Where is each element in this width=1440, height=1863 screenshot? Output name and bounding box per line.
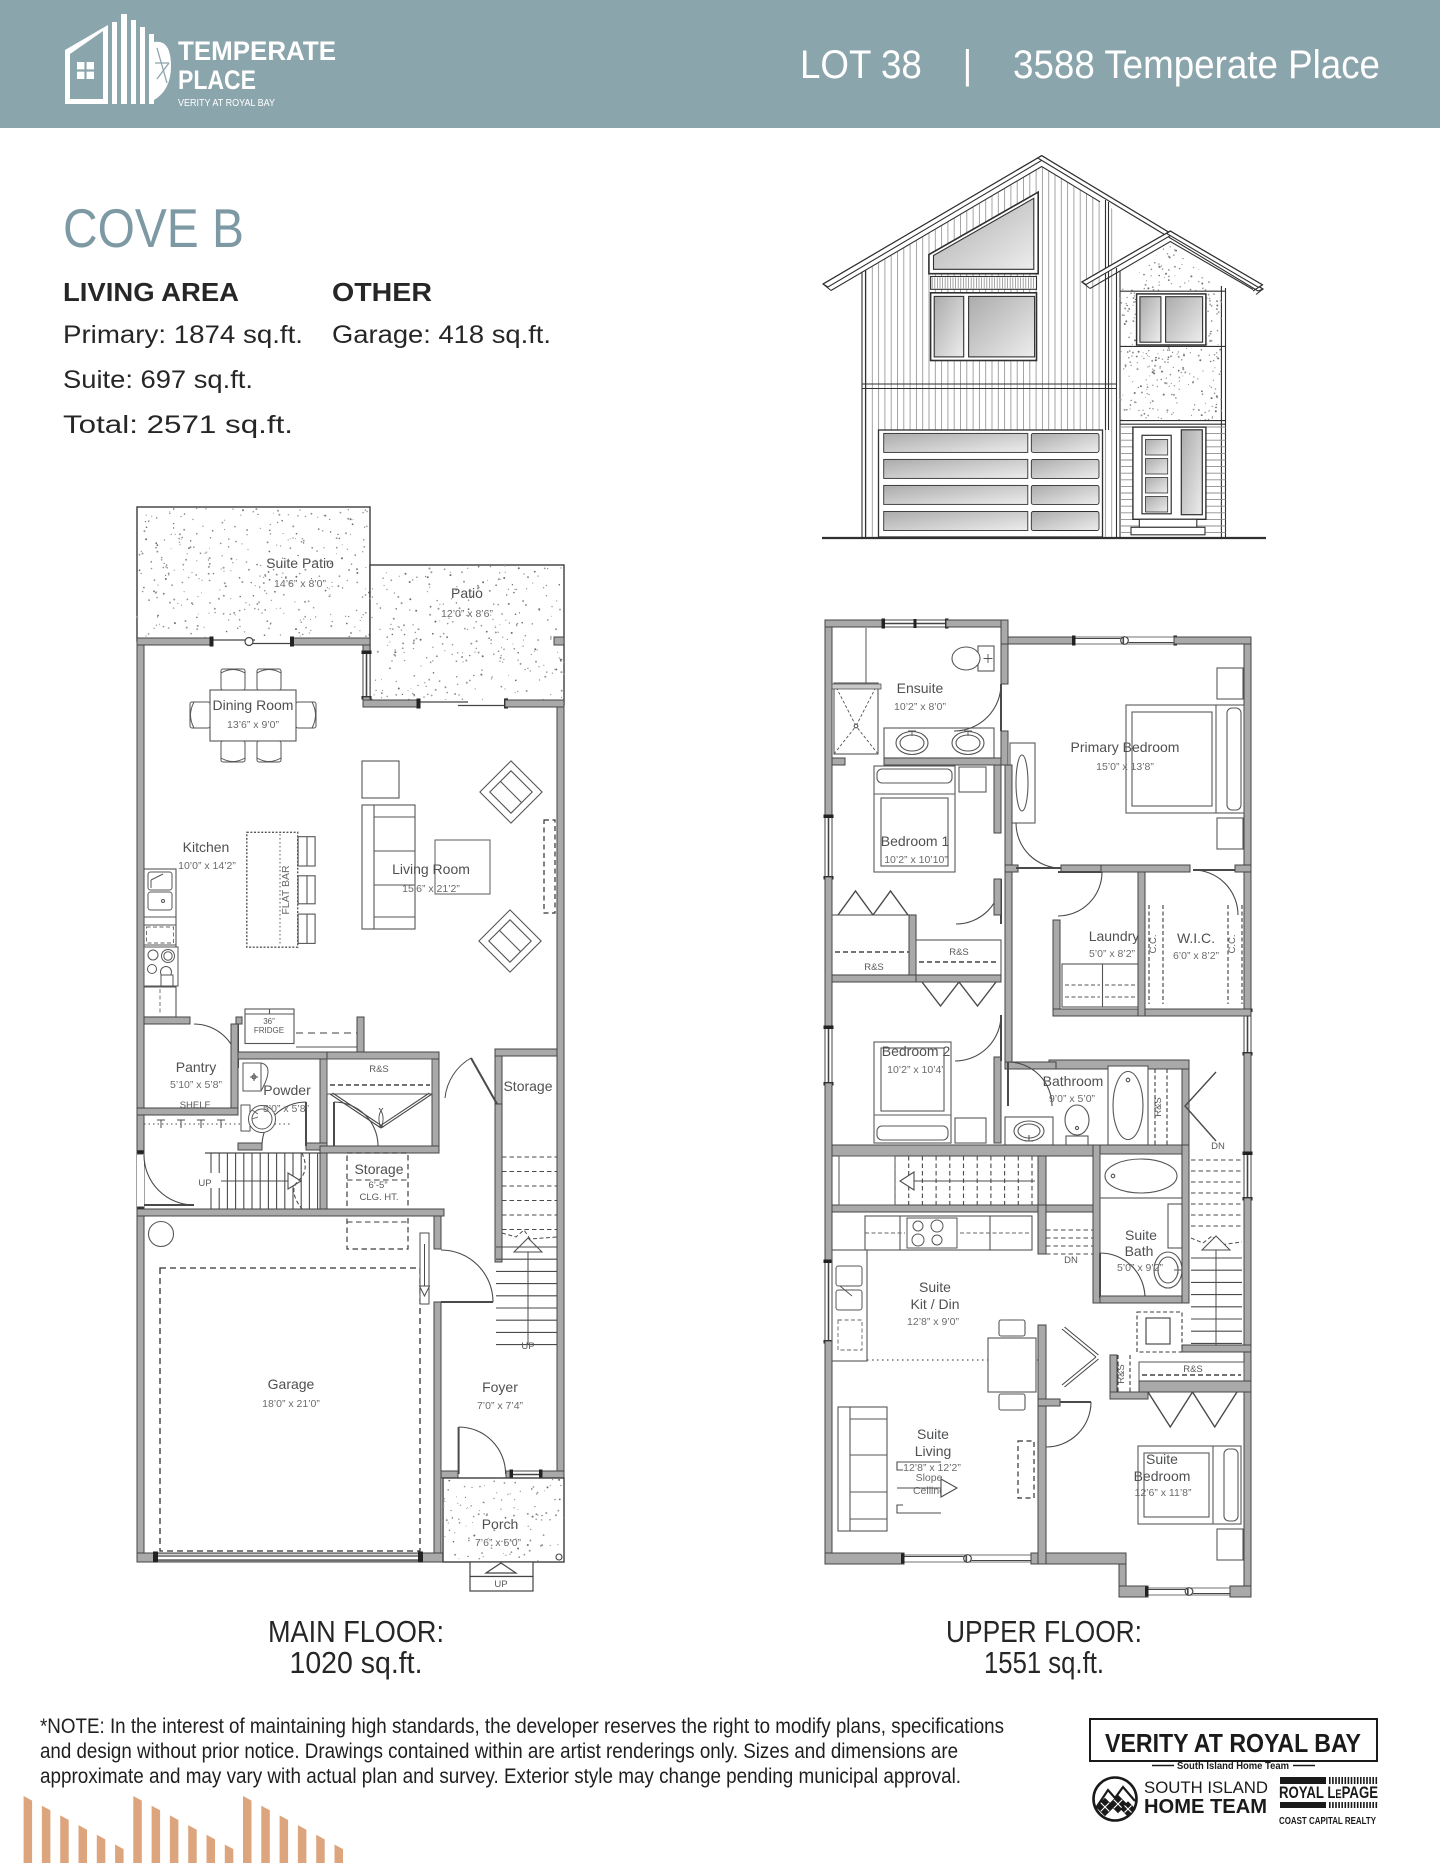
svg-text:DN: DN	[1064, 1255, 1078, 1266]
svg-text:Bedroom 1: Bedroom 1	[881, 833, 950, 849]
svg-text:1020 sq.ft.: 1020 sq.ft.	[290, 1645, 423, 1680]
svg-text:5’0” x 9’2”: 5’0” x 9’2”	[1117, 1262, 1164, 1274]
svg-text:18’0” x 21’0”: 18’0” x 21’0”	[262, 1398, 320, 1410]
svg-text:5’0” x 8’2”: 5’0” x 8’2”	[1089, 948, 1136, 960]
svg-text:C.C.: C.C.	[1227, 935, 1238, 954]
svg-text:Patio: Patio	[451, 585, 483, 601]
svg-text:36”: 36”	[263, 1017, 275, 1026]
svg-text:12’8” x 9’0”: 12’8” x 9’0”	[907, 1316, 959, 1328]
svg-text:9’0” x 5’0”: 9’0” x 5’0”	[1049, 1093, 1096, 1105]
svg-text:5’0” x 5’8”: 5’0” x 5’8”	[263, 1103, 310, 1115]
svg-text:R&S: R&S	[864, 962, 884, 973]
svg-text:Storage: Storage	[354, 1161, 403, 1177]
svg-text:10’2” x 10’10”: 10’2” x 10’10”	[884, 854, 948, 866]
svg-text:Foyer: Foyer	[482, 1379, 518, 1395]
svg-text:UP: UP	[198, 1178, 211, 1189]
svg-text:10’0” x 14’2”: 10’0” x 14’2”	[178, 860, 236, 872]
svg-text:Bathroom: Bathroom	[1043, 1073, 1104, 1089]
svg-text:6’0” x 8’2”: 6’0” x 8’2”	[1173, 950, 1220, 962]
svg-text:Bedroom 2: Bedroom 2	[882, 1043, 951, 1059]
svg-text:Suite: Suite	[917, 1426, 949, 1442]
svg-text:W.I.C.: W.I.C.	[1177, 930, 1215, 946]
svg-text:13’6” x 9’0”: 13’6” x 9’0”	[227, 719, 279, 731]
svg-text:approximate and may vary with: approximate and may vary with actual pla…	[40, 1765, 961, 1788]
svg-text:UP: UP	[494, 1579, 507, 1590]
svg-text:Living: Living	[915, 1443, 952, 1459]
svg-text:and design without prior notic: and design without prior notice. Drawing…	[40, 1740, 958, 1763]
svg-text:R&S: R&S	[949, 947, 969, 958]
svg-text:Suite: Suite	[919, 1279, 951, 1295]
svg-text:Ceiling: Ceiling	[913, 1485, 945, 1497]
svg-text:7’6” x 5’0”: 7’6” x 5’0”	[475, 1537, 522, 1549]
svg-text:15’0” x 13’8”: 15’0” x 13’8”	[1096, 761, 1154, 773]
svg-text:10’2” x 10’4”: 10’2” x 10’4”	[887, 1064, 945, 1076]
svg-text:Suite: Suite	[1146, 1451, 1178, 1467]
svg-text:5’10” x 5’8”: 5’10” x 5’8”	[170, 1079, 222, 1091]
svg-text:Bath: Bath	[1125, 1243, 1154, 1259]
svg-text:15’6” x 21’2”: 15’6” x 21’2”	[402, 883, 460, 895]
svg-text:7’0” x 7’4”: 7’0” x 7’4”	[477, 1400, 524, 1412]
svg-text:R&S: R&S	[1153, 1097, 1164, 1117]
svg-text:Powder: Powder	[263, 1082, 311, 1098]
svg-text:MAIN FLOOR:: MAIN FLOOR:	[268, 1614, 444, 1649]
svg-text:Bedroom: Bedroom	[1134, 1468, 1191, 1484]
svg-text:Kit / Din: Kit / Din	[910, 1296, 959, 1312]
svg-text:C.C.: C.C.	[1148, 935, 1159, 954]
svg-text:FRIDGE: FRIDGE	[254, 1026, 284, 1035]
svg-text:SHELF: SHELF	[180, 1100, 211, 1111]
svg-text:12’0” x 8’6”: 12’0” x 8’6”	[441, 608, 493, 620]
svg-text:Storage: Storage	[503, 1078, 552, 1094]
svg-text:Laundry: Laundry	[1089, 928, 1140, 944]
svg-text:R&S: R&S	[1116, 1364, 1127, 1384]
svg-text:14’6” x 8’0”: 14’6” x 8’0”	[274, 578, 326, 590]
svg-text:Porch: Porch	[482, 1516, 519, 1532]
svg-text:Suite: Suite	[1125, 1227, 1157, 1243]
svg-text:UP: UP	[521, 1341, 534, 1352]
svg-text:Ensuite: Ensuite	[897, 680, 944, 696]
svg-text:Suite Patio: Suite Patio	[266, 555, 334, 571]
svg-text:R&S: R&S	[369, 1064, 389, 1075]
svg-text:R&S: R&S	[1183, 1364, 1203, 1375]
svg-text:*NOTE: In the interest of main: *NOTE: In the interest of maintaining hi…	[40, 1715, 1004, 1738]
svg-text:Pantry: Pantry	[176, 1059, 216, 1075]
svg-text:Living Room: Living Room	[392, 861, 470, 877]
svg-text:CLG. HT.: CLG. HT.	[359, 1192, 398, 1203]
svg-text:6’-5”: 6’-5”	[368, 1180, 387, 1191]
svg-text:DN: DN	[1211, 1141, 1225, 1152]
svg-text:Dining Room: Dining Room	[213, 697, 294, 713]
svg-text:FLAT BAR: FLAT BAR	[280, 865, 292, 915]
svg-text:Garage: Garage	[268, 1376, 315, 1392]
svg-text:12’6” x 11’8”: 12’6” x 11’8”	[1134, 1487, 1192, 1499]
svg-text:Slope: Slope	[916, 1472, 943, 1484]
svg-text:Primary Bedroom: Primary Bedroom	[1071, 739, 1180, 755]
svg-text:UPPER FLOOR:: UPPER FLOOR:	[946, 1614, 1142, 1649]
svg-text:Kitchen: Kitchen	[183, 839, 230, 855]
svg-text:1551 sq.ft.: 1551 sq.ft.	[984, 1645, 1104, 1680]
svg-text:10’2” x 8’0”: 10’2” x 8’0”	[894, 701, 946, 713]
